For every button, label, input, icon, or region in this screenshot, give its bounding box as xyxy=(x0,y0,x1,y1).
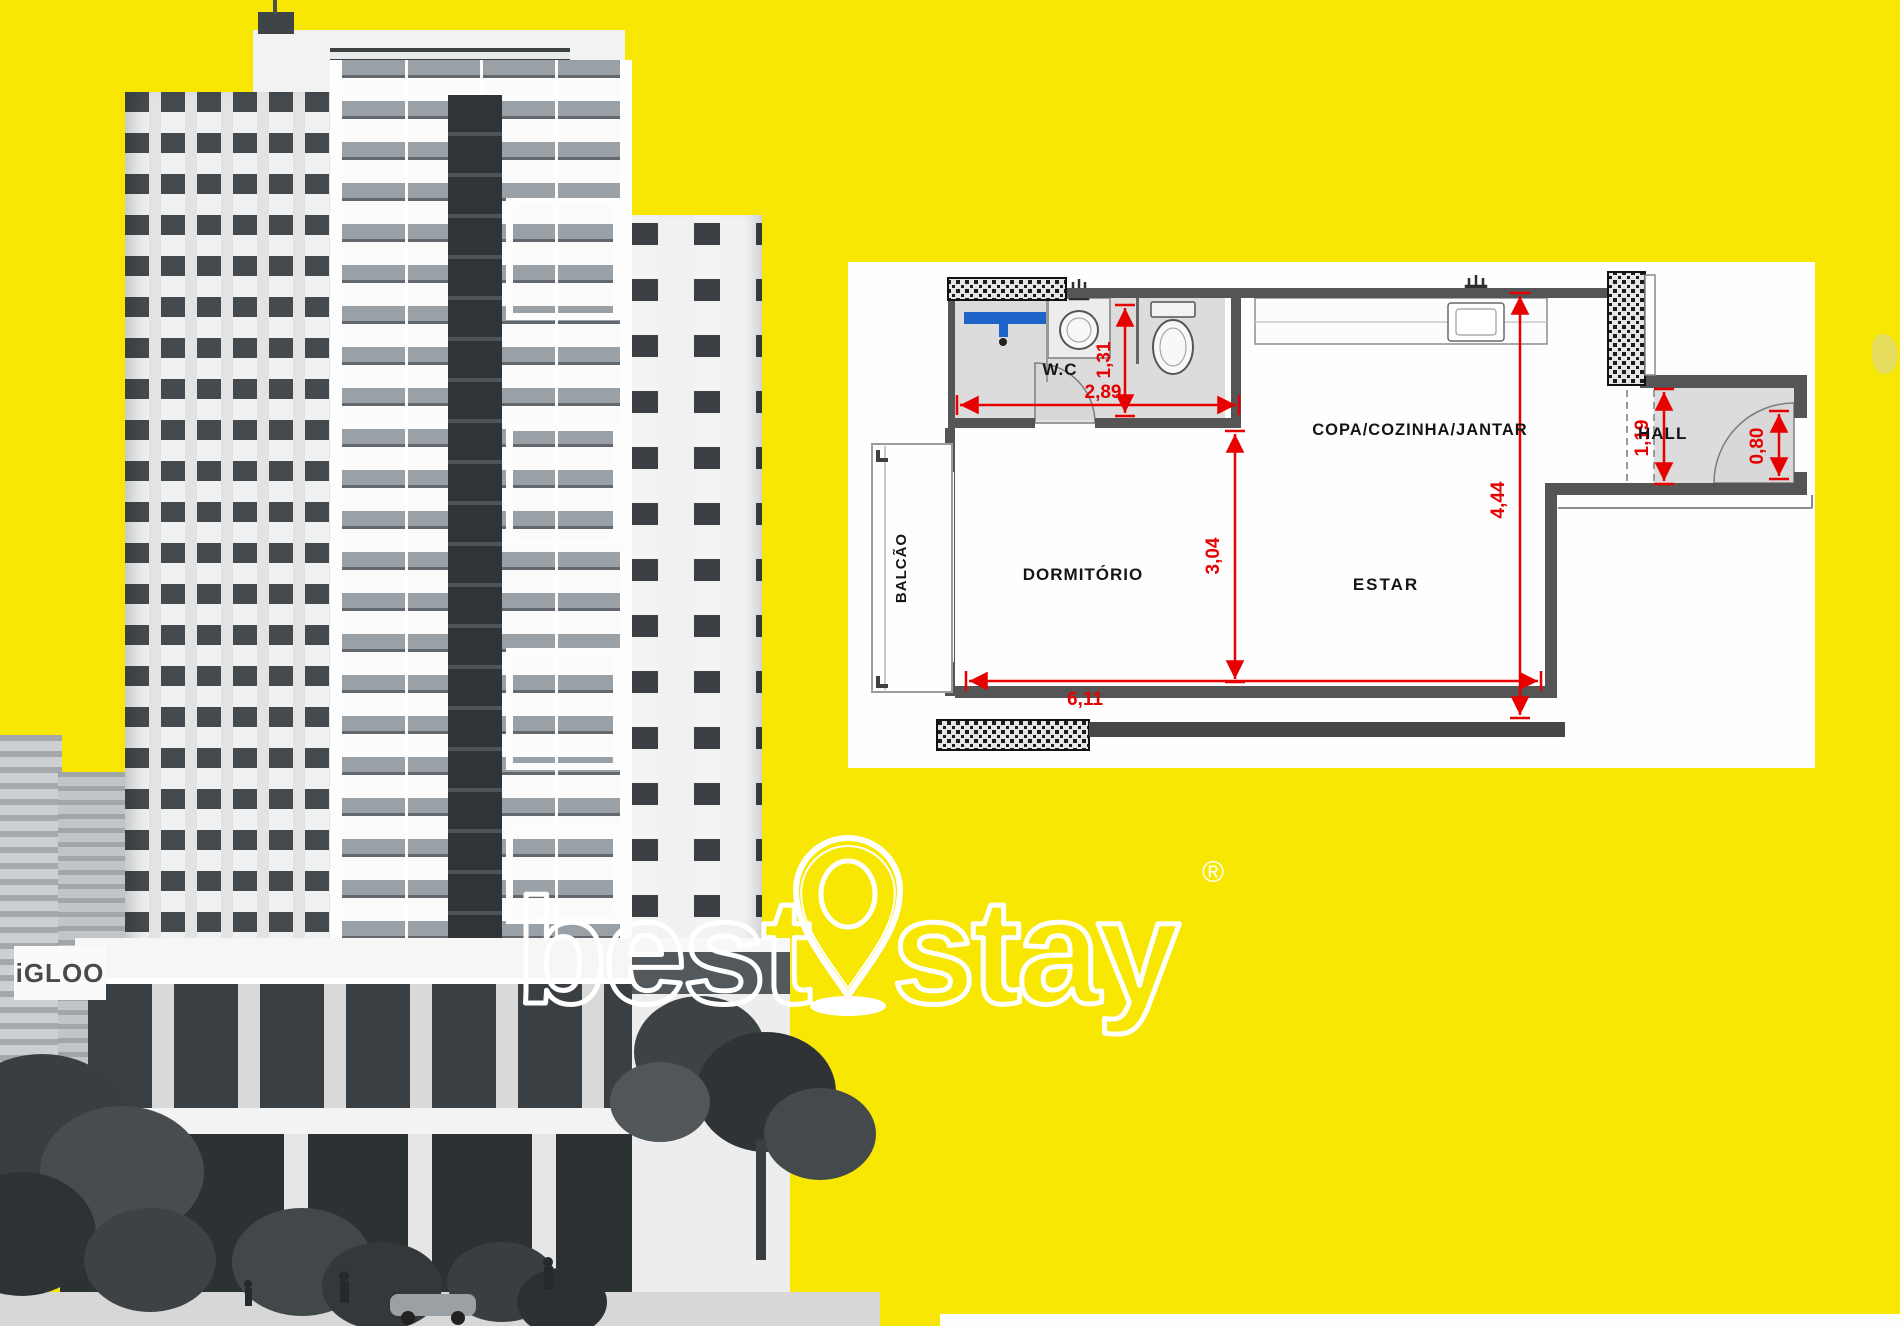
tree-cluster-left xyxy=(0,1054,216,1312)
best-stay-watermark: best stay ® xyxy=(440,810,1260,1040)
rooftop-equipment xyxy=(258,12,294,34)
room-label-living: ESTAR xyxy=(1353,575,1419,594)
shaft-hatch-top xyxy=(948,278,1066,300)
watermark-artifact xyxy=(1872,334,1898,374)
balcony-frame xyxy=(506,198,620,320)
balcony-frame xyxy=(506,424,620,546)
dim-kitchen-living-depth: 4,44 xyxy=(1488,481,1509,518)
dim-wc-depth: 1,31 xyxy=(1094,341,1115,378)
watermark-text-best: best xyxy=(516,867,811,1035)
rooftop-antenna xyxy=(273,0,277,14)
lower-boundary-wall xyxy=(1089,722,1565,737)
room-label-bedroom: DORMITÓRIO xyxy=(1023,565,1144,584)
floor-plan: 2,89 1,31 3,04 4,44 1,19 0,80 6,11 W.C C… xyxy=(848,262,1815,768)
shaft-hatch-bottom xyxy=(937,720,1089,750)
bottom-white-strip xyxy=(940,1314,1900,1326)
dim-total-width: 6,11 xyxy=(1067,689,1103,710)
car-silhouette xyxy=(390,1294,476,1325)
marketing-image: iGLOO xyxy=(0,0,1900,1326)
dim-wc-width: 2,89 xyxy=(1085,382,1122,403)
registered-mark: ® xyxy=(1202,856,1224,889)
room-label-balcony: BALCÃO xyxy=(892,533,910,603)
balcony-outline xyxy=(872,444,952,692)
room-label-kitchen: COPA/COZINHA/JANTAR xyxy=(1312,421,1527,439)
location-pin-icon xyxy=(796,838,900,1016)
room-label-hall: HALL xyxy=(1638,424,1687,443)
dim-entry-door-width: 0,80 xyxy=(1747,428,1768,465)
watermark-text-stay: stay xyxy=(892,867,1180,1035)
pin-base xyxy=(810,996,886,1016)
toilet-icon xyxy=(1151,302,1195,374)
room-label-wc: W.C xyxy=(1042,360,1077,379)
shaft-hatch-right xyxy=(1608,272,1645,385)
dim-bedroom-depth: 3,04 xyxy=(1203,537,1224,574)
shaft-side-wall xyxy=(1645,275,1655,375)
